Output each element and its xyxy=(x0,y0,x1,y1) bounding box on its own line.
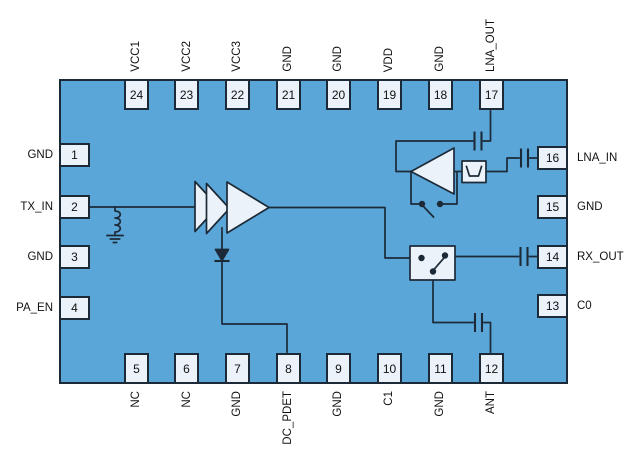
pin-8: 8 xyxy=(276,353,301,384)
pin-3: 3 xyxy=(59,245,90,269)
pin-18: 18 xyxy=(428,79,453,110)
pin-label-vcc1: VCC1 xyxy=(128,41,144,72)
pin-label-gnd-3: GND xyxy=(1,249,53,265)
pin-label-nc-6: NC xyxy=(179,391,195,408)
pin-24: 24 xyxy=(124,79,149,110)
pin-12: 12 xyxy=(479,353,504,384)
pin-label-vcc2: VCC2 xyxy=(179,41,195,72)
pin-label-c0: C0 xyxy=(577,298,592,314)
pin-9: 9 xyxy=(326,353,351,384)
pin-label-vdd: VDD xyxy=(381,48,397,72)
pin-label-gnd-15: GND xyxy=(577,199,603,215)
pin-11: 11 xyxy=(428,353,453,384)
pin-21: 21 xyxy=(276,79,301,110)
pin-label-gnd-21: GND xyxy=(280,46,296,72)
pin-label-lna-in: LNA_IN xyxy=(577,150,617,166)
pin-22: 22 xyxy=(225,79,250,110)
pin-label-gnd-11: GND xyxy=(432,391,448,417)
pin-label-tx-in: TX_IN xyxy=(1,199,53,215)
pin-label-gnd-9: GND xyxy=(330,391,346,417)
pin-label-gnd-7: GND xyxy=(229,391,245,417)
pin-16: 16 xyxy=(537,146,568,170)
pin-17: 17 xyxy=(479,79,504,110)
pin-20: 20 xyxy=(326,79,351,110)
pinout-diagram: 24 23 22 21 20 19 18 17 5 6 7 8 9 10 11 … xyxy=(0,0,639,464)
pin-2: 2 xyxy=(59,195,90,219)
pin-label-lna-out: LNA_OUT xyxy=(483,19,499,72)
pin-label-gnd-20: GND xyxy=(330,46,346,72)
pin-label-c1: C1 xyxy=(381,391,397,406)
pin-14: 14 xyxy=(537,245,568,269)
pin-label-ant: ANT xyxy=(483,391,499,414)
pin-15: 15 xyxy=(537,195,568,219)
pin-1: 1 xyxy=(59,143,90,167)
pin-label-vcc3: VCC3 xyxy=(229,41,245,72)
pin-10: 10 xyxy=(377,353,402,384)
pin-7: 7 xyxy=(225,353,250,384)
pin-label-dc-pdet: DC_PDET xyxy=(280,391,296,445)
pin-5: 5 xyxy=(124,353,149,384)
pin-label-gnd-18: GND xyxy=(432,46,448,72)
pin-4: 4 xyxy=(59,296,90,320)
pin-label-nc-5: NC xyxy=(128,391,144,408)
pin-23: 23 xyxy=(174,79,199,110)
pin-label-gnd-1: GND xyxy=(1,147,53,163)
chip-body xyxy=(59,79,568,384)
pin-13: 13 xyxy=(537,294,568,318)
pin-label-pa-en: PA_EN xyxy=(1,300,53,316)
pin-label-rx-out: RX_OUT xyxy=(577,249,624,265)
pin-19: 19 xyxy=(377,79,402,110)
pin-6: 6 xyxy=(174,353,199,384)
